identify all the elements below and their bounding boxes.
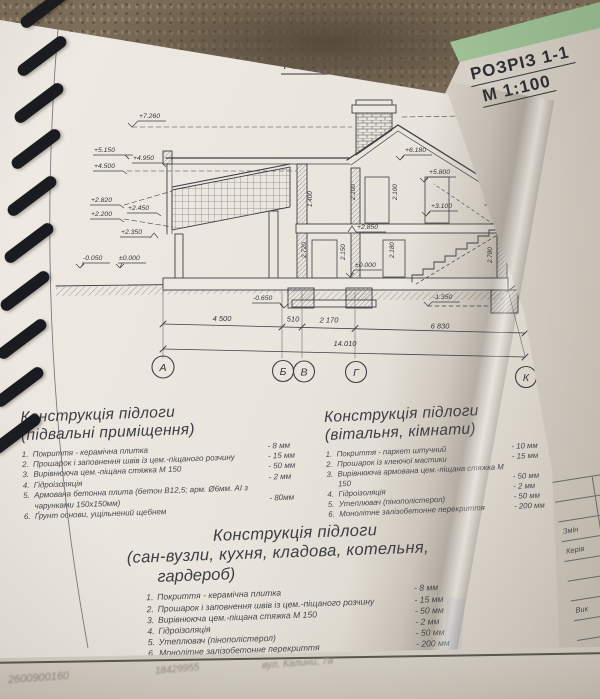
elev-mark: -0.050 xyxy=(83,255,102,262)
elev-mark: +4.500 xyxy=(94,163,115,170)
elev-mark: +3.100 xyxy=(431,203,452,210)
spec-item-number: 5. xyxy=(23,491,34,502)
elev-mark: +2.200 xyxy=(91,211,112,218)
under-sheet-number: 18429955 xyxy=(155,662,200,677)
floor-spec-living: Конструкція підлоги (вітальня, кімнати) … xyxy=(324,399,557,520)
elev-mark: +2.850 xyxy=(357,224,378,231)
elev-mark: +4.950 xyxy=(133,155,154,162)
elev-mark: +2.820 xyxy=(91,197,112,204)
spec-item-thickness: - 2 мм xyxy=(268,471,314,483)
dim-label: 2 170 xyxy=(319,316,340,325)
spec-item-number: 1. xyxy=(325,449,336,460)
spec-item-number: 2. xyxy=(326,459,337,470)
spec-item-list: 1. Покриття - паркет штучний - 10 мм 2. … xyxy=(325,440,556,521)
chimney xyxy=(352,100,396,155)
axis-letter: В xyxy=(300,367,307,379)
spec-item-number: 3. xyxy=(326,469,337,480)
dim-label: 14.010 xyxy=(334,339,358,348)
axis-letter: А xyxy=(158,362,166,374)
spec-item-list: 1. Покриття - керамічна плитка - 8 мм 2.… xyxy=(146,582,468,660)
dim-label: 2.100 xyxy=(392,184,399,201)
dim-label: 2.100 xyxy=(350,184,357,201)
spec-item-thickness: - 15 мм xyxy=(512,450,554,462)
spec-item-number: 1. xyxy=(146,592,157,604)
photo-stage: Змін Керів Вик xyxy=(0,0,600,699)
spec-item-list: 1. Покриття - керамічна плитка - 8 мм 2.… xyxy=(22,439,316,522)
dim-label: 2.720 xyxy=(301,242,308,259)
spec-item-number: 4. xyxy=(327,490,338,501)
elev-mark: +5.150 xyxy=(94,147,115,154)
elev-mark: -0.650 xyxy=(253,295,272,302)
under-sheet-code: 2600900160 xyxy=(8,670,70,686)
elev-mark: +2.450 xyxy=(128,205,149,212)
dim-label: 2.180 xyxy=(389,242,396,259)
elev-mark: +5.800 xyxy=(429,169,450,176)
floor-spec-wet-rooms: Конструкція підлоги (сан-вузли, кухня, к… xyxy=(126,518,468,660)
spec-item-number: 6. xyxy=(24,512,35,523)
elev-mark: ±0.000 xyxy=(119,255,140,262)
terrace-roof xyxy=(172,164,290,279)
axis-bubbles xyxy=(152,356,537,388)
spec-item-number: 2. xyxy=(146,603,157,615)
sheet-frame-line xyxy=(50,6,88,648)
floor-spec-basement: Конструкція підлоги (підвальні приміщенн… xyxy=(20,399,316,522)
axis-letter: К xyxy=(523,372,530,384)
dim-label: 6 830 xyxy=(431,322,451,331)
spec-item-thickness: - 200 мм xyxy=(416,637,468,650)
spec-item-number: 3. xyxy=(147,615,158,627)
spec-item-number: 1. xyxy=(22,449,33,460)
spec-item-thickness: - 80мм xyxy=(269,491,315,503)
spec-item-number: 2. xyxy=(22,460,33,471)
dim-label: 2.780 xyxy=(487,247,494,264)
spec-item-thickness: - 200 мм xyxy=(514,500,556,512)
dim-label: 2.150 xyxy=(340,244,347,261)
elev-mark: +6.180 xyxy=(405,147,426,154)
dim-label: 4 500 xyxy=(213,314,233,323)
spec-item-number: 3. xyxy=(22,470,33,481)
axis-letter: Б xyxy=(280,366,287,378)
spec-item-number: 6. xyxy=(328,510,339,521)
dim-label: 1.400 xyxy=(307,191,314,207)
spec-item-number: 4. xyxy=(147,626,158,638)
dim-label: 510 xyxy=(287,315,300,324)
spec-item-number: 4. xyxy=(23,480,34,491)
elev-mark: +7.260 xyxy=(139,113,160,120)
elev-mark: -1.350 xyxy=(433,294,452,301)
elev-mark: +2.350 xyxy=(121,229,142,236)
axis-letter: Г xyxy=(353,367,360,379)
elev-mark: ±0.000 xyxy=(355,262,376,269)
spec-item-number: 5. xyxy=(328,500,339,511)
spec-item-number: 5. xyxy=(148,637,159,649)
